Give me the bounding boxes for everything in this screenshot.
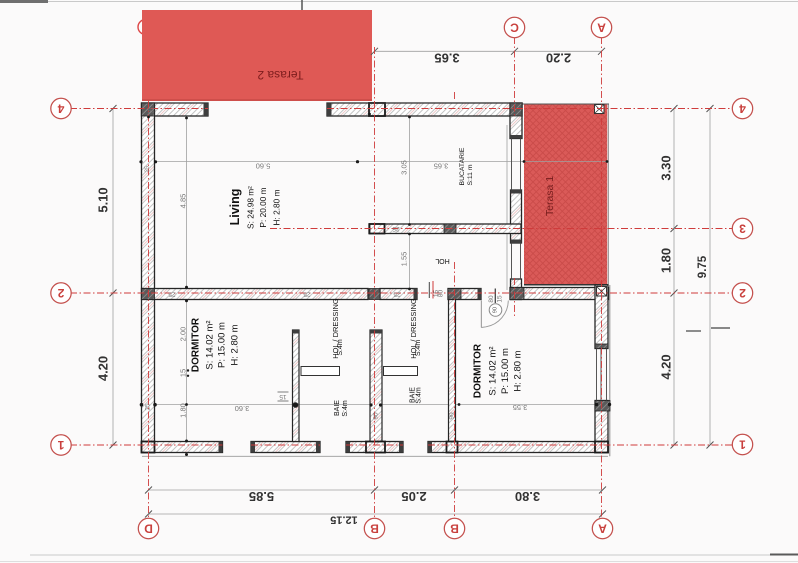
svg-text:4: 4 <box>57 102 64 116</box>
svg-text:D: D <box>144 522 153 536</box>
svg-text:90: 90 <box>449 412 456 420</box>
svg-text:4.20: 4.20 <box>96 356 111 381</box>
svg-text:Terasa 1: Terasa 1 <box>544 176 556 216</box>
svg-text:25: 25 <box>168 291 176 298</box>
svg-text:S:4m: S:4m <box>416 387 423 404</box>
svg-text:3.60: 3.60 <box>235 404 250 413</box>
svg-text:S: 14.02 m²: S: 14.02 m² <box>205 320 216 369</box>
svg-text:P: 20.00 m: P: 20.00 m <box>258 187 268 227</box>
svg-text:P: 15.00 m: P: 15.00 m <box>500 348 511 394</box>
svg-text:1.80: 1.80 <box>659 248 674 273</box>
svg-text:25: 25 <box>145 403 152 411</box>
svg-text:1: 1 <box>739 438 746 452</box>
svg-text:25: 25 <box>392 225 400 232</box>
svg-text:3.65: 3.65 <box>434 50 459 65</box>
svg-text:3.80: 3.80 <box>515 489 540 504</box>
svg-text:BAIE: BAIE <box>334 400 341 416</box>
svg-text:80: 80 <box>438 290 445 298</box>
svg-text:4.20: 4.20 <box>659 354 674 379</box>
svg-text:2.00: 2.00 <box>179 327 188 342</box>
svg-text:HOL: HOL <box>435 257 450 264</box>
svg-text:5.10: 5.10 <box>96 187 111 212</box>
svg-text:C: C <box>510 21 519 35</box>
svg-text:B: B <box>450 522 459 536</box>
svg-text:BUCATARIE: BUCATARIE <box>459 147 466 185</box>
svg-text:S:4m: S:4m <box>342 400 349 417</box>
svg-text:S:4m: S:4m <box>415 340 422 357</box>
svg-text:3.65: 3.65 <box>434 162 449 171</box>
svg-text:1.55: 1.55 <box>400 252 409 267</box>
svg-text:1: 1 <box>57 438 64 452</box>
svg-text:2: 2 <box>739 286 746 300</box>
svg-text:P: 15.00 m: P: 15.00 m <box>217 322 228 368</box>
svg-text:4: 4 <box>739 102 746 116</box>
svg-text:5.85: 5.85 <box>249 489 274 504</box>
svg-text:90: 90 <box>373 412 380 420</box>
svg-text:DORMITOR: DORMITOR <box>191 317 202 372</box>
svg-text:15: 15 <box>179 369 188 377</box>
svg-text:25: 25 <box>393 291 401 298</box>
svg-text:Terasa 2: Terasa 2 <box>257 68 303 82</box>
svg-text:3.55: 3.55 <box>513 403 528 412</box>
svg-text:5.60: 5.60 <box>256 162 271 171</box>
svg-text:A: A <box>597 21 606 35</box>
svg-text:3: 3 <box>739 222 746 236</box>
svg-text:3.30: 3.30 <box>659 155 674 180</box>
svg-text:2: 2 <box>57 286 64 300</box>
svg-text:80: 80 <box>488 295 495 303</box>
svg-text:A: A <box>598 522 607 536</box>
svg-text:S: 14.02 m²: S: 14.02 m² <box>488 346 499 395</box>
svg-text:S: 24.98 m²: S: 24.98 m² <box>246 186 256 229</box>
svg-text:25: 25 <box>303 291 311 298</box>
svg-text:B: B <box>370 522 379 536</box>
svg-text:H: 2.80 m: H: 2.80 m <box>513 350 524 391</box>
svg-text:4.85: 4.85 <box>179 194 188 209</box>
svg-text:2.20: 2.20 <box>546 50 571 65</box>
svg-text:25: 25 <box>145 166 151 172</box>
svg-text:15: 15 <box>279 393 287 400</box>
svg-text:S:4m: S:4m <box>337 339 344 356</box>
svg-text:S:11 m: S:11 m <box>467 164 474 185</box>
svg-text:2.05: 2.05 <box>401 489 426 504</box>
svg-text:12.15: 12.15 <box>330 514 358 526</box>
svg-text:H: 2.80 m: H: 2.80 m <box>272 189 282 225</box>
svg-text:15: 15 <box>497 295 504 303</box>
svg-text:25: 25 <box>147 106 155 113</box>
svg-text:H: 2.80 m: H: 2.80 m <box>230 324 241 365</box>
svg-text:90: 90 <box>493 307 499 313</box>
svg-text:3.05: 3.05 <box>400 160 409 175</box>
svg-text:Living: Living <box>228 189 242 226</box>
svg-text:DORMITOR: DORMITOR <box>473 343 484 398</box>
svg-text:9.75: 9.75 <box>697 255 709 278</box>
